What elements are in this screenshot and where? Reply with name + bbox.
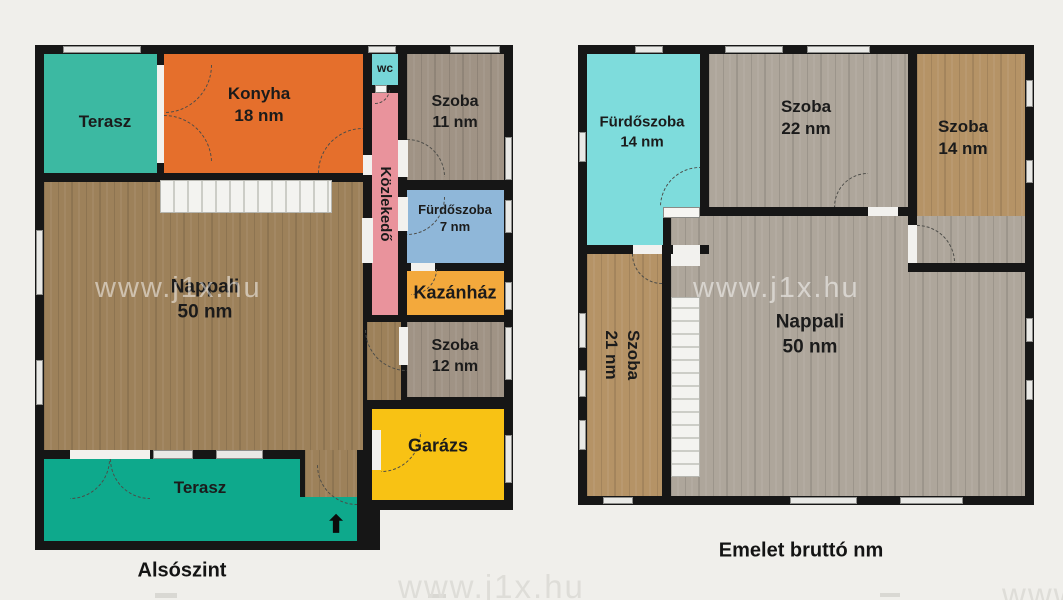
plan-title-lower: Alsószint [138, 560, 227, 583]
window [1026, 80, 1033, 107]
window [603, 497, 633, 504]
plan-title-upper: Emelet bruttó nm [719, 540, 883, 563]
window [790, 497, 857, 504]
room-label-szoba-11: Szoba11 nm [431, 92, 478, 134]
door-opening [70, 450, 150, 459]
window [635, 46, 663, 53]
room-label-furdoszoba-14: Fürdőszoba14 nm [600, 113, 685, 152]
wall-opening [362, 218, 373, 263]
room-label-furdoszoba-7: Fürdőszoba7 nm [418, 202, 492, 236]
entrance-arrow-icon: ⬆ [326, 511, 346, 540]
door-opening [363, 155, 372, 175]
room-label-terasz-top: Terasz [79, 111, 132, 133]
window [900, 497, 963, 504]
window [579, 313, 586, 348]
window [505, 137, 512, 180]
room-label-wc: wc [377, 61, 393, 77]
window [505, 327, 512, 380]
scan-artifact [880, 593, 900, 597]
window [1026, 318, 1033, 342]
window [36, 230, 43, 295]
room-label-szoba-14: Szoba14 nm [938, 116, 988, 160]
room-nappali-upper [671, 216, 1025, 496]
watermark: www.j1x.hu [693, 272, 860, 305]
door-leaf [663, 207, 700, 218]
door-opening [868, 207, 898, 216]
window [579, 420, 586, 450]
room-label-szoba-12: Szoba12 nm [431, 336, 478, 378]
door-opening [398, 140, 408, 177]
window [153, 450, 193, 459]
room-label-szoba-21: Szoba21 nm [600, 330, 644, 380]
window [63, 46, 141, 53]
window [579, 132, 586, 162]
window [505, 435, 512, 483]
watermark: www.j1x.hu [95, 272, 262, 305]
stairs-upper [671, 297, 700, 477]
stairs-lower [160, 180, 332, 213]
window [725, 46, 783, 53]
door-opening [157, 65, 164, 163]
room-label-szoba-22: Szoba22 nm [781, 96, 831, 140]
window [505, 200, 512, 233]
window [807, 46, 870, 53]
floorplan-image: Terasz Konyha18 nm wc Szoba11 nm Közleke… [0, 0, 1063, 600]
window [216, 450, 263, 459]
room-label-nappali-upper: Nappali50 nm [776, 310, 845, 359]
door-opening [673, 245, 700, 254]
door-opening [633, 245, 662, 254]
window [450, 46, 500, 53]
door-opening [398, 197, 408, 231]
window [579, 370, 586, 397]
door-opening [372, 430, 381, 470]
wall [908, 263, 1025, 272]
room-label-kazanhaz: Kazánház [413, 281, 496, 304]
watermark: www.j1x.hu [398, 568, 585, 600]
door-opening [908, 225, 917, 263]
window [1026, 380, 1033, 400]
room-label-garazs: Garázs [408, 434, 468, 457]
wall [663, 218, 671, 245]
room-label-terasz-bottom: Terasz [174, 477, 227, 499]
window [505, 282, 512, 310]
room-label-konyha: Konyha18 nm [228, 83, 290, 127]
window [1026, 160, 1033, 183]
watermark: www.j1x.hu [1002, 576, 1063, 600]
stair-landing [671, 254, 700, 266]
room-label-kozlekedo: Közlekedő [375, 166, 395, 241]
scan-artifact [155, 593, 177, 598]
window [368, 46, 396, 53]
window [36, 360, 43, 405]
